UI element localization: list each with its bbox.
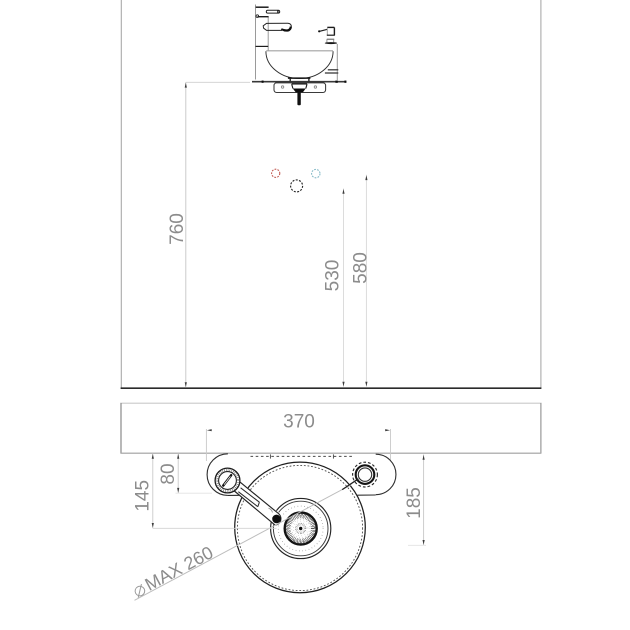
svg-text:145: 145 [133,480,154,512]
svg-text:580: 580 [351,252,372,284]
svg-text:80: 80 [158,463,179,484]
svg-text:185: 185 [404,487,425,519]
svg-text:530: 530 [322,260,343,292]
svg-text:370: 370 [283,411,315,432]
svg-text:760: 760 [167,213,188,245]
